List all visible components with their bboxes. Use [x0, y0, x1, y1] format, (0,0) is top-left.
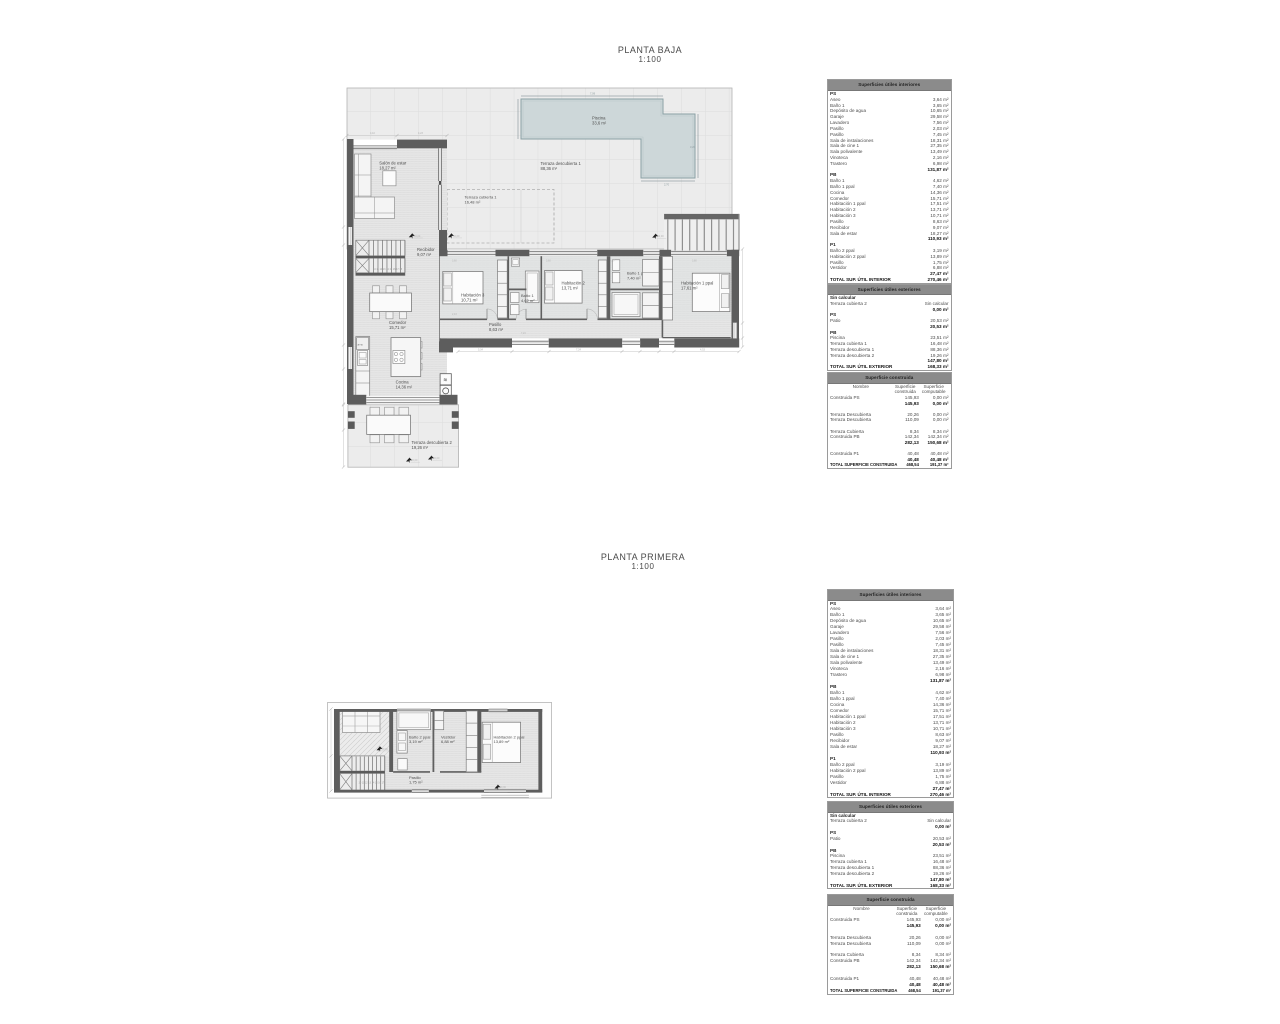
- svg-text:±0,00: ±0,00: [453, 235, 460, 238]
- svg-text:6,88 m²: 6,88 m²: [441, 739, 455, 744]
- svg-text:7,09: 7,09: [590, 92, 596, 96]
- svg-text:4,23: 4,23: [418, 132, 423, 135]
- svg-text:7,40 m²: 7,40 m²: [627, 275, 641, 280]
- svg-text:14,36 m²: 14,36 m²: [396, 385, 413, 390]
- svg-text:7,24: 7,24: [521, 332, 526, 335]
- svg-text:3,80: 3,80: [692, 260, 697, 263]
- svg-text:13,71 m²: 13,71 m²: [562, 286, 579, 291]
- svg-text:17,61 m²: 17,61 m²: [681, 286, 698, 291]
- svg-text:±0,00: ±0,00: [500, 786, 507, 789]
- svg-text:≋: ≋: [443, 378, 447, 384]
- svg-text:±0,00: ±0,00: [657, 235, 664, 238]
- svg-text:10 11 12 13 14 15 16 17: 10 11 12 13 14 15 16 17: [359, 781, 385, 784]
- svg-text:±0,00: ±0,00: [382, 748, 389, 751]
- svg-text:3,20: 3,20: [690, 145, 696, 149]
- svg-text:15,71 m²: 15,71 m²: [389, 325, 406, 330]
- svg-text:3,19 m²: 3,19 m²: [409, 739, 423, 744]
- svg-text:2,70: 2,70: [664, 183, 670, 187]
- svg-text:a+a: a+a: [358, 343, 363, 347]
- svg-text:33,6 m²: 33,6 m²: [592, 121, 607, 126]
- svg-text:10,71 m²: 10,71 m²: [461, 298, 478, 303]
- svg-text:4,62 m²: 4,62 m²: [521, 298, 535, 303]
- svg-text:19,26 m²: 19,26 m²: [412, 445, 429, 450]
- svg-text:4,53: 4,53: [700, 348, 705, 351]
- svg-text:88,36 m²: 88,36 m²: [541, 166, 558, 171]
- svg-text:4,10: 4,10: [370, 132, 375, 135]
- svg-text:5,04: 5,04: [478, 348, 483, 351]
- svg-text:13,89 m²: 13,89 m²: [494, 739, 510, 744]
- svg-text:9,07 m²: 9,07 m²: [417, 252, 432, 257]
- svg-text:±0,00: ±0,00: [414, 235, 421, 238]
- svg-text:3,60: 3,60: [452, 260, 457, 263]
- svg-text:10 11 12 13 14 15 16 17 18: 10 11 12 13 14 15 16 17 18: [373, 268, 403, 271]
- svg-text:1,75 m²: 1,75 m²: [409, 780, 423, 785]
- svg-text:8,63 m²: 8,63 m²: [489, 327, 504, 332]
- svg-text:7,24: 7,24: [576, 348, 581, 351]
- svg-text:2,47: 2,47: [610, 260, 615, 263]
- svg-text:±0,00: ±0,00: [411, 459, 418, 462]
- svg-text:16,48 m²: 16,48 m²: [465, 199, 481, 204]
- svg-text:2,43: 2,43: [452, 313, 457, 316]
- svg-text:18,27 m²: 18,27 m²: [379, 166, 396, 171]
- svg-text:±0,00: ±0,00: [433, 457, 440, 460]
- svg-text:3,60: 3,60: [546, 260, 551, 263]
